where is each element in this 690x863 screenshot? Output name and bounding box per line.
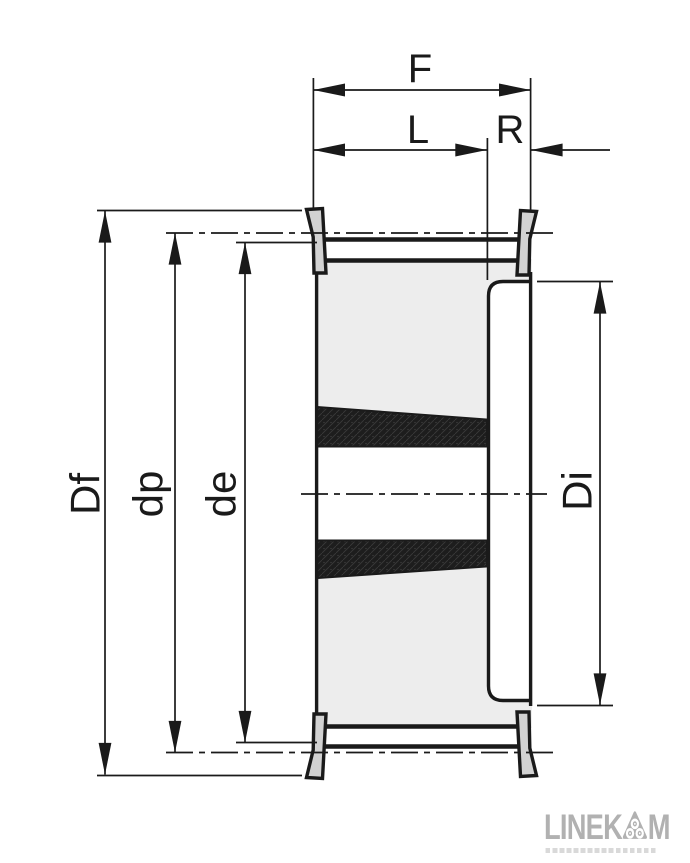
logo-tagline [546, 848, 657, 853]
logo-text-right: M [648, 810, 670, 845]
flange-top-right [517, 211, 537, 276]
hub-recess-outline [489, 282, 532, 701]
arrow-F-right [499, 84, 531, 97]
pulley-drawing-svg: F L R Df dp de Di [0, 0, 690, 863]
dim-label-Di: Di [554, 471, 601, 511]
dim-label-L: L [407, 108, 429, 152]
arrow-dp-bottom [169, 721, 182, 753]
arrow-L-left [313, 144, 345, 157]
flange-bottom-left [307, 714, 327, 779]
pulley-technical-drawing: F L R Df dp de Di LINEK M [0, 0, 690, 863]
dim-label-de: de [198, 471, 245, 518]
flange-top-left [307, 209, 327, 274]
arrow-Df-top [99, 211, 112, 243]
dim-label-F: F [408, 47, 432, 91]
arrow-L-right [455, 144, 487, 157]
dim-label-R: R [496, 108, 525, 152]
arrow-R-right-face [531, 144, 563, 157]
arrow-Di-bottom [594, 673, 607, 705]
flange-bottom-right [517, 712, 537, 777]
arrow-de-bottom [239, 711, 252, 743]
arrow-de-top [239, 243, 252, 275]
dim-label-dp: dp [125, 471, 172, 518]
logo-text-left: LINEK [544, 810, 622, 845]
arrow-Di-top [594, 282, 607, 314]
dim-label-Df: Df [62, 473, 109, 515]
arrow-Df-bottom [99, 743, 112, 775]
logo: LINEK M [544, 810, 670, 853]
logo-badge-icon [623, 811, 647, 841]
arrow-F-left [313, 84, 345, 97]
arrow-dp-top [169, 233, 182, 265]
